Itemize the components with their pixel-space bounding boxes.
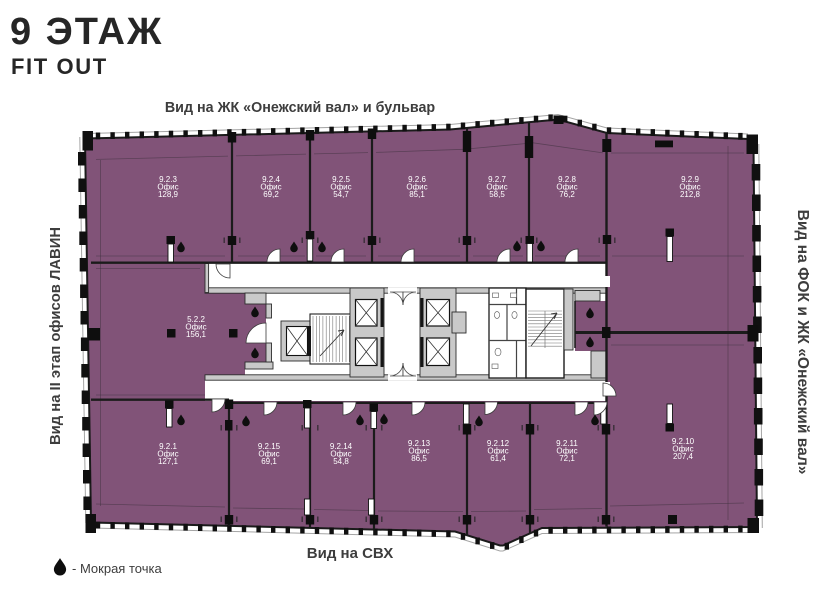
svg-text:Вид на II этап офисов ЛАВИН: Вид на II этап офисов ЛАВИН xyxy=(48,227,64,445)
svg-text:9.2.6Офис85,1: 9.2.6Офис85,1 xyxy=(406,175,427,199)
svg-text:9.2.4Офис69,2: 9.2.4Офис69,2 xyxy=(260,175,281,199)
svg-text:9.2.7Офис58,5: 9.2.7Офис58,5 xyxy=(486,175,507,199)
svg-text:9.2.1Офис127,1: 9.2.1Офис127,1 xyxy=(157,442,178,466)
svg-text:FIT OUT: FIT OUT xyxy=(11,54,108,79)
svg-text:9 ЭТАЖ: 9 ЭТАЖ xyxy=(10,11,163,53)
svg-text:9.2.9Офис212,8: 9.2.9Офис212,8 xyxy=(679,175,700,199)
svg-text:Вид на ФОК и ЖК «Онежский вал»: Вид на ФОК и ЖК «Онежский вал» xyxy=(794,210,811,475)
svg-text:9.2.3Офис128,9: 9.2.3Офис128,9 xyxy=(157,175,178,199)
svg-text:- Мокрая точка: - Мокрая точка xyxy=(72,561,162,576)
svg-text:9.2.10Офис207,4: 9.2.10Офис207,4 xyxy=(672,437,695,461)
svg-text:Вид на СВХ: Вид на СВХ xyxy=(307,545,393,562)
svg-text:Вид на ЖК «Онежский вал» и бул: Вид на ЖК «Онежский вал» и бульвар xyxy=(165,100,436,116)
svg-text:5.2.2Офис156,1: 5.2.2Офис156,1 xyxy=(185,315,206,339)
svg-text:9.2.5Офис54,7: 9.2.5Офис54,7 xyxy=(330,175,351,199)
svg-text:9.2.8Офис76,2: 9.2.8Офис76,2 xyxy=(556,175,577,199)
